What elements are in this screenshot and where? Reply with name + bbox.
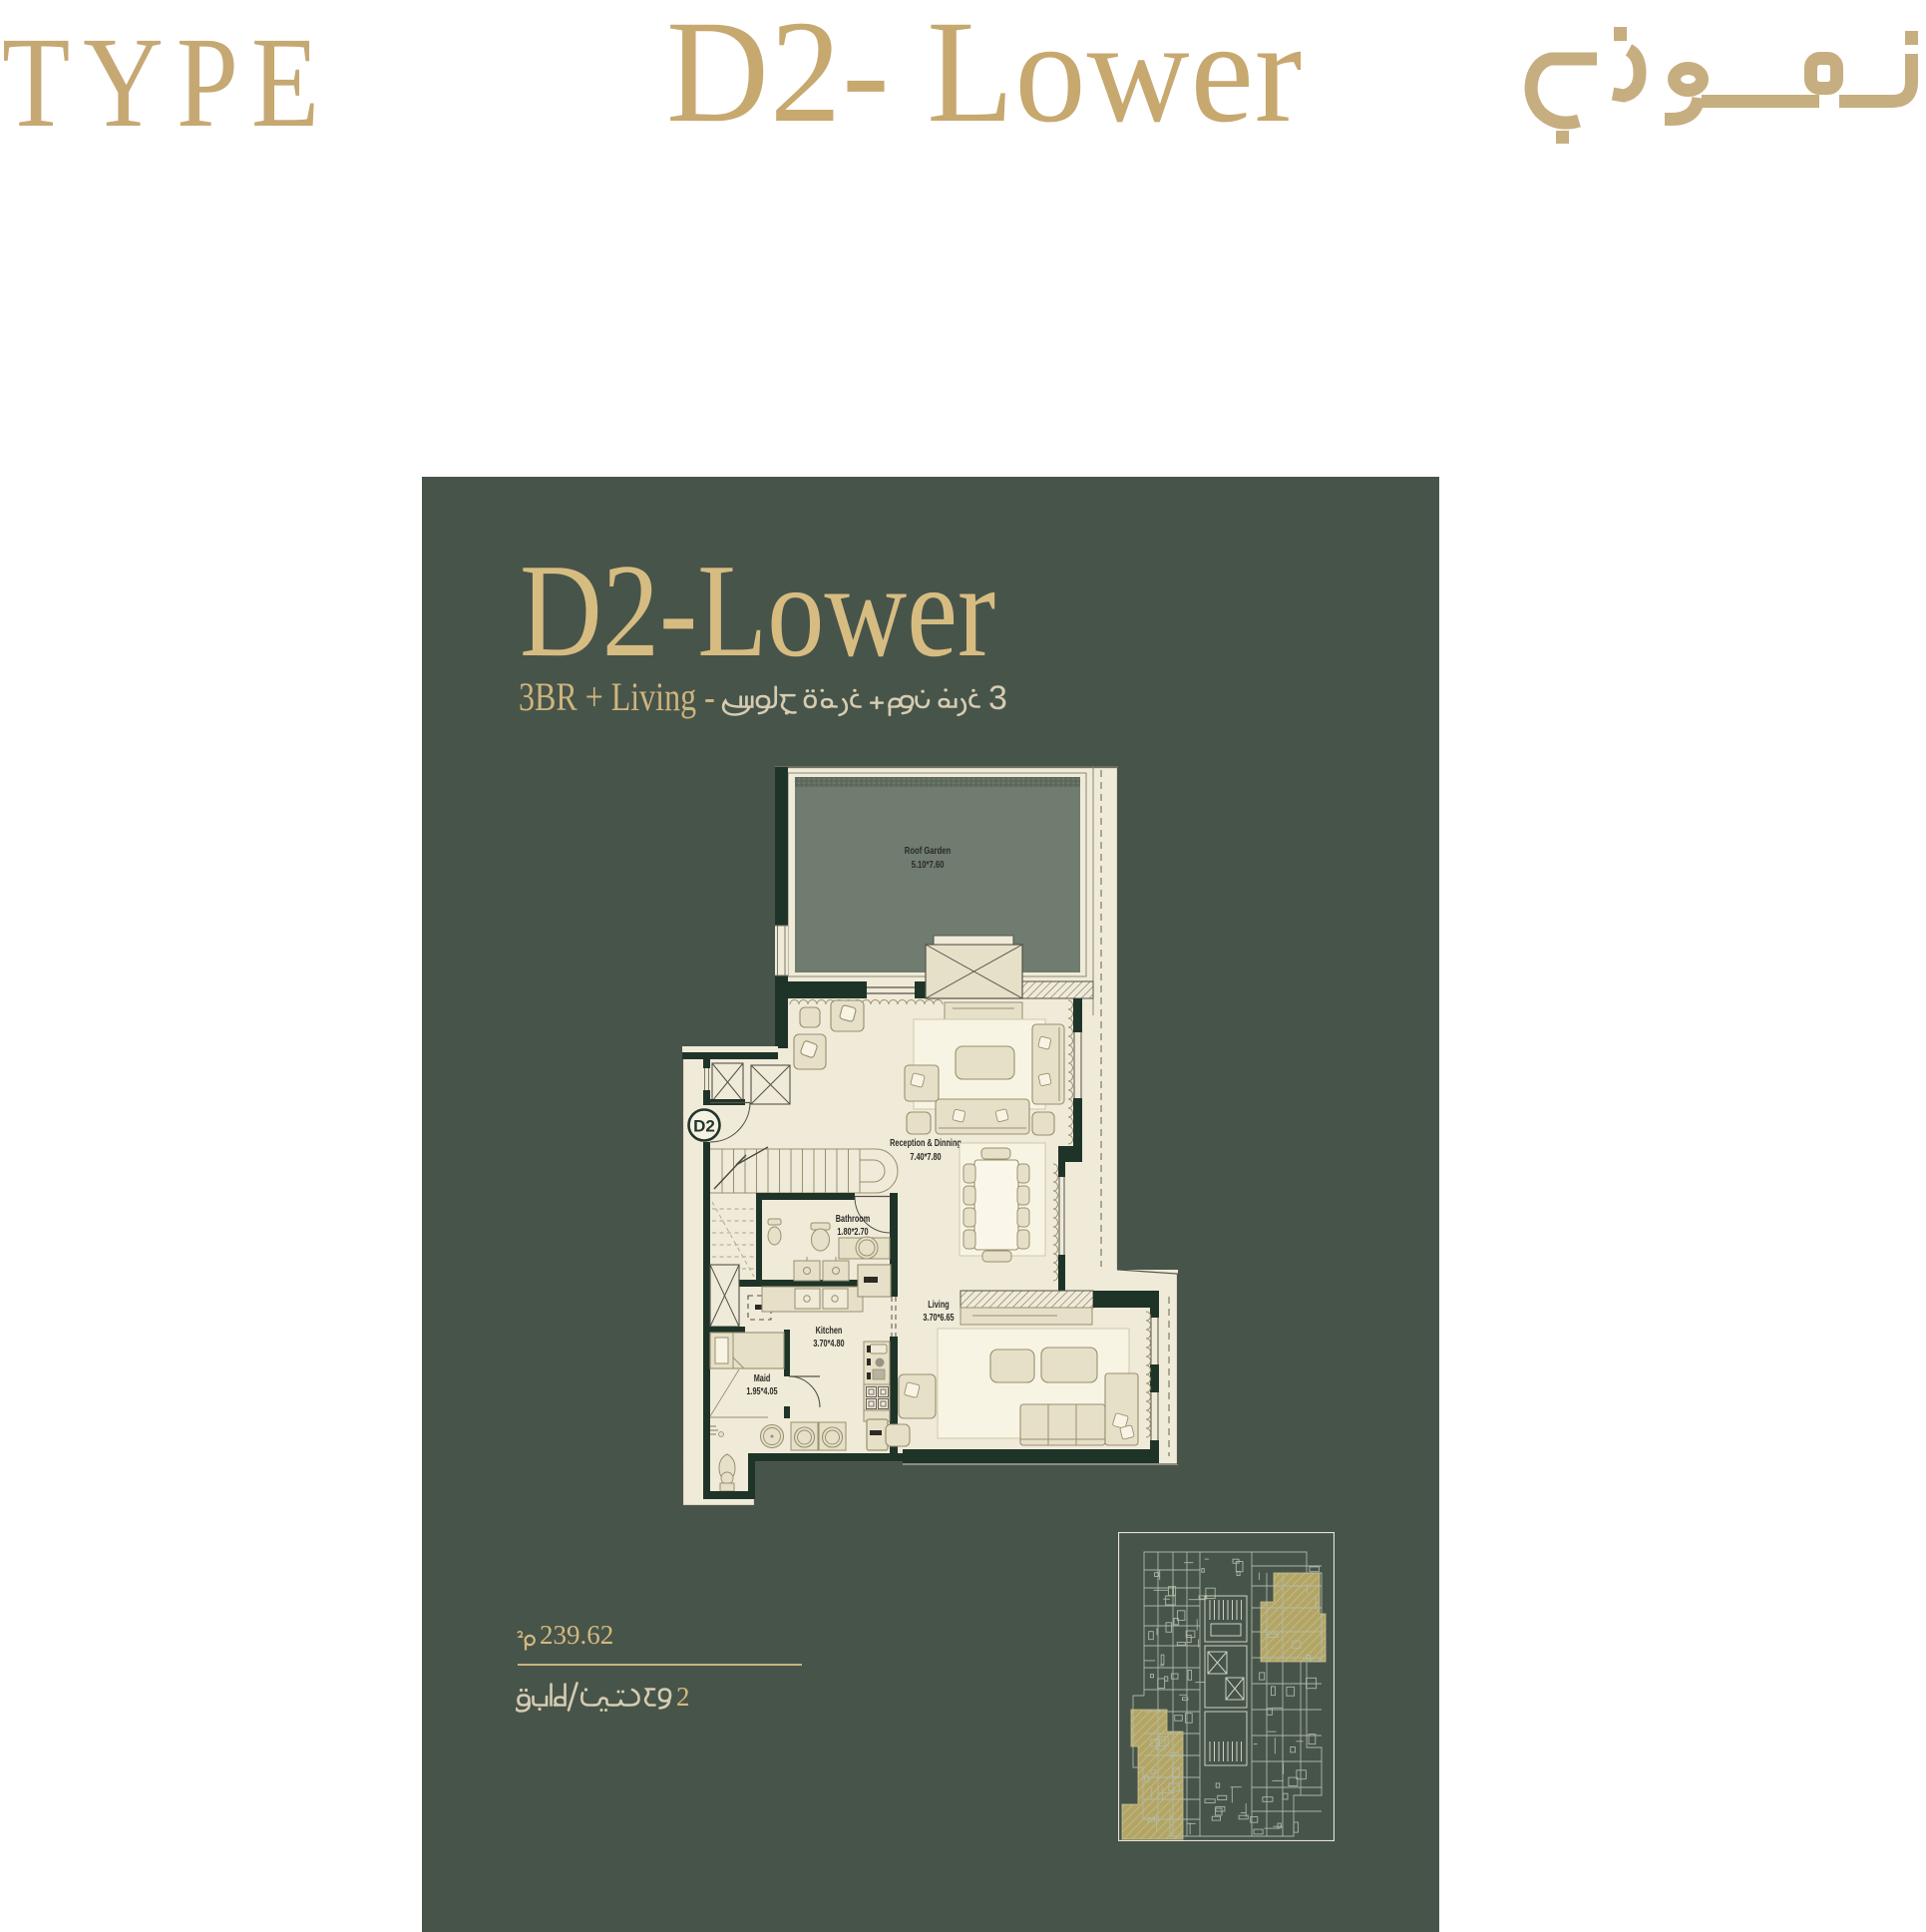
- svg-text:Reception & Dinning: Reception & Dinning: [890, 1137, 962, 1148]
- svg-text:Bathroom: Bathroom: [836, 1213, 871, 1224]
- svg-text:5.10*7.60: 5.10*7.60: [912, 859, 945, 870]
- svg-text:Roof Garden: Roof Garden: [905, 845, 952, 856]
- svg-text:3.70*6.65: 3.70*6.65: [923, 1312, 954, 1323]
- svg-text:Kitchen: Kitchen: [816, 1325, 843, 1336]
- svg-text:1.95*4.05: 1.95*4.05: [746, 1385, 777, 1396]
- svg-text:D2: D2: [693, 1117, 715, 1136]
- svg-text:Living: Living: [928, 1299, 949, 1310]
- svg-text:3: 3: [988, 679, 1007, 717]
- svg-text:3.70*4.80: 3.70*4.80: [813, 1338, 844, 1349]
- svg-text:1.80*2.70: 1.80*2.70: [837, 1226, 868, 1237]
- svg-text:7.40*7.80: 7.40*7.80: [910, 1151, 941, 1162]
- svg-text:Maid: Maid: [754, 1372, 771, 1383]
